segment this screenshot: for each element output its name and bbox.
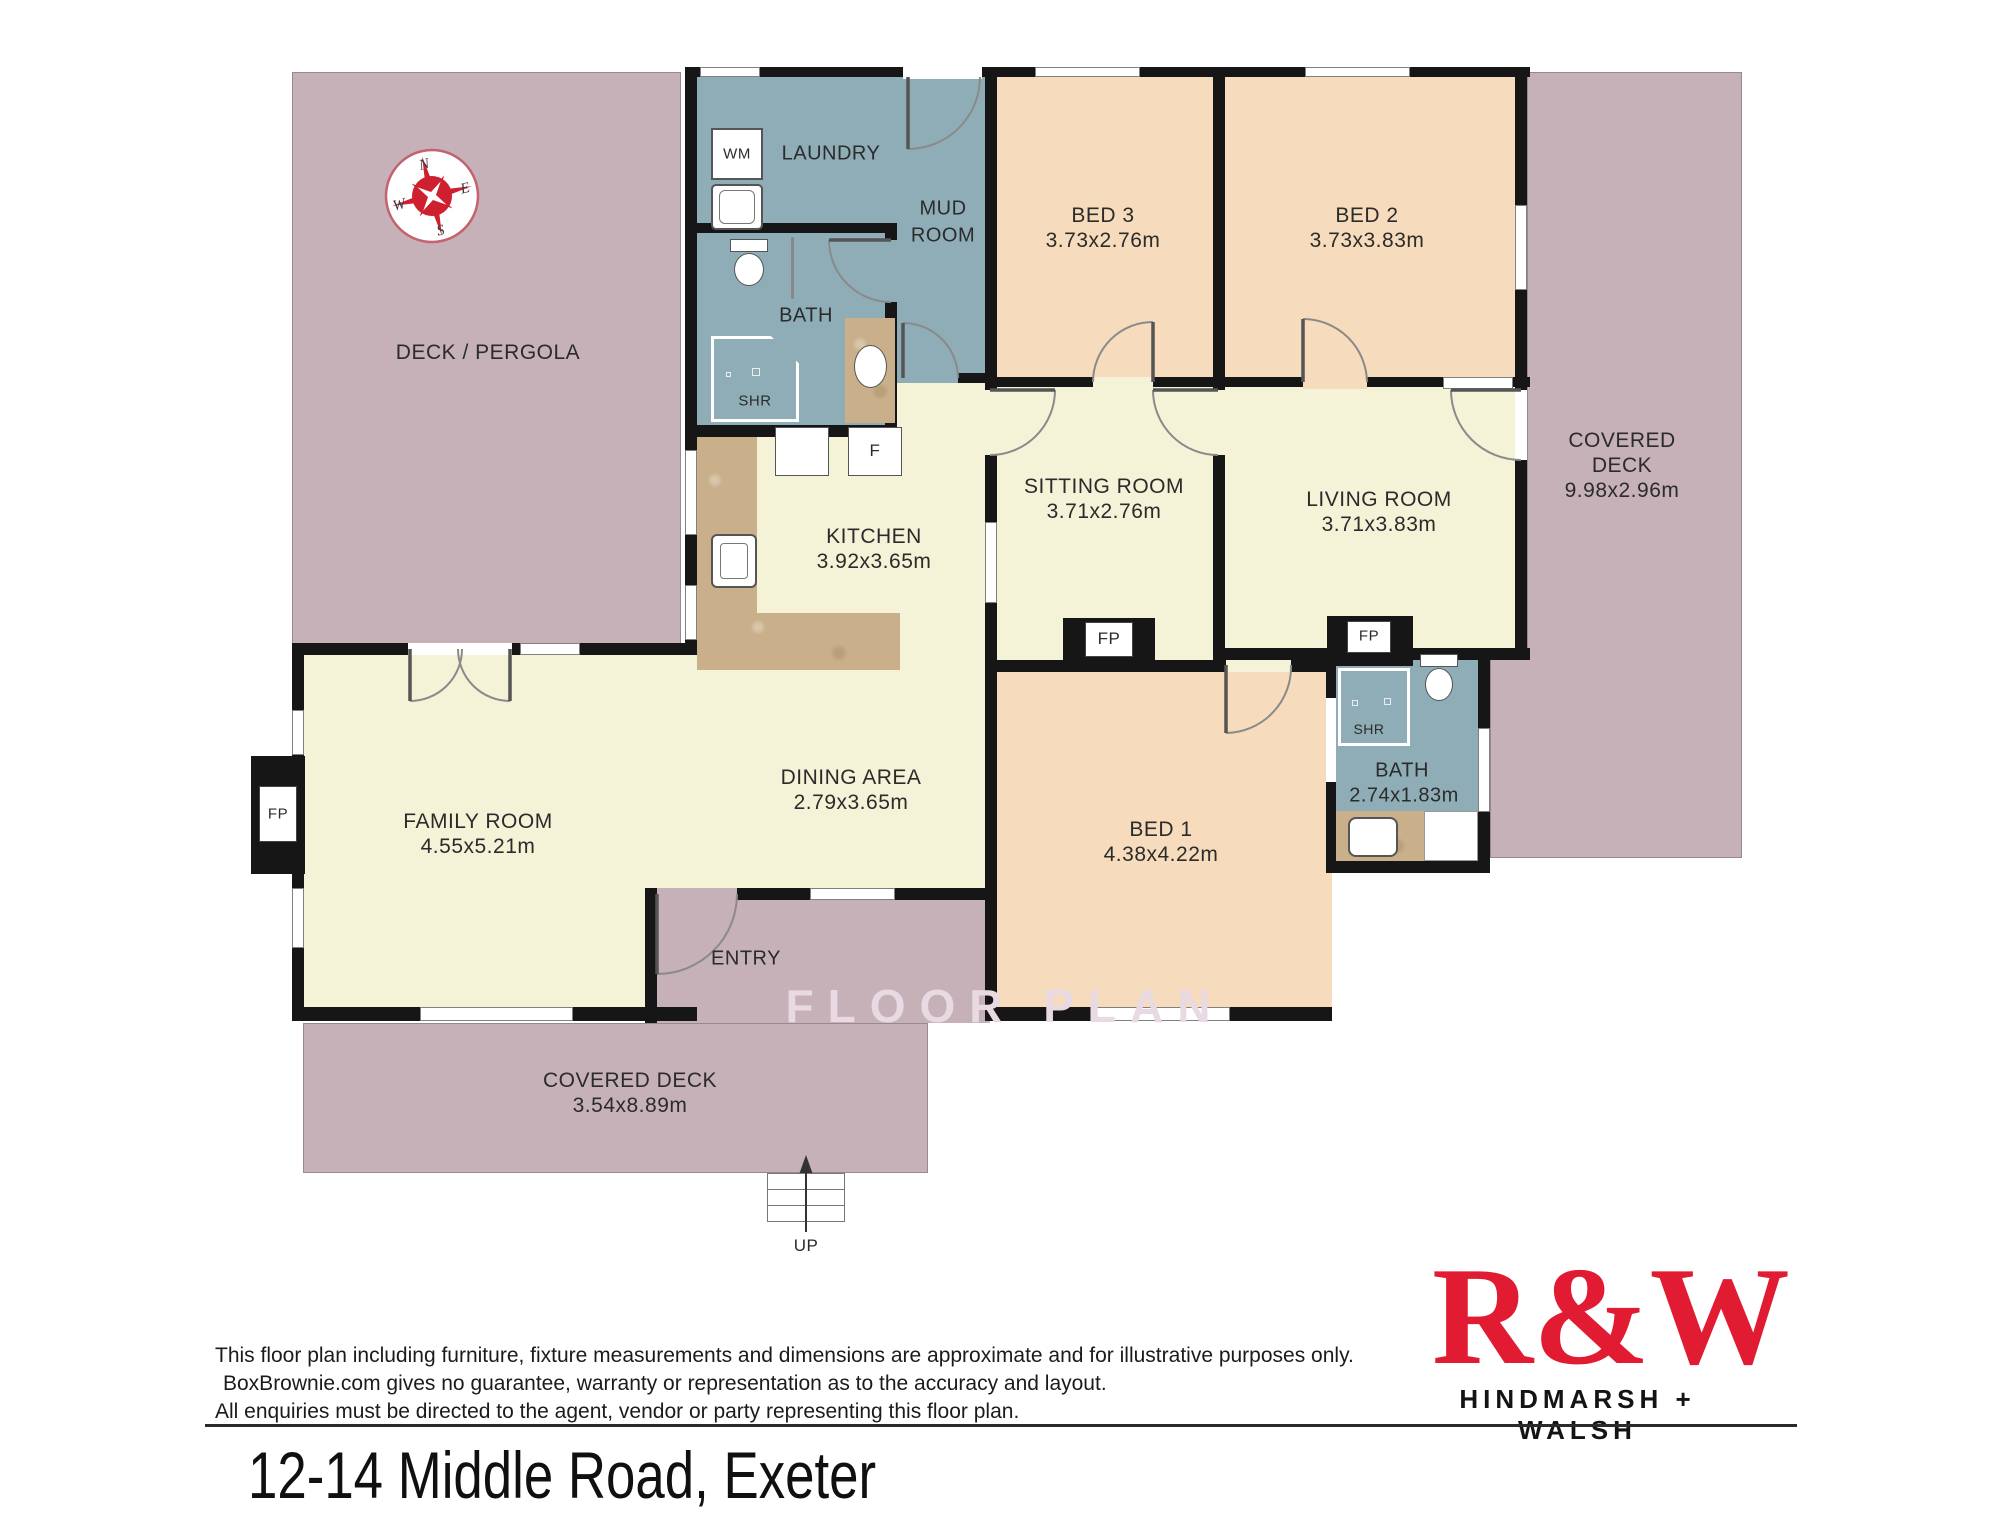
wall-segment (645, 888, 657, 1023)
room-dims-living-room: 3.71x3.83m (1322, 513, 1437, 537)
room-dims-family-room: 4.55x5.21m (421, 835, 536, 859)
stair-step (767, 1205, 845, 1222)
room-dims-bed3: 3.73x2.76m (1046, 229, 1161, 253)
door-opening (1326, 698, 1336, 782)
label-fp-living: FP (1359, 628, 1379, 645)
wall-segment (685, 67, 697, 655)
door-opening (1213, 390, 1225, 455)
brand-name: HINDMARSH + WALSH (1405, 1384, 1750, 1446)
room-label-bath-top: BATH (779, 305, 833, 328)
wall-segment (1515, 67, 1527, 660)
window (1305, 67, 1410, 77)
window (700, 67, 760, 77)
shower-top-drain (752, 368, 760, 376)
room-label-family-room: FAMILY ROOM (403, 810, 552, 834)
shower-bottom-head (1352, 700, 1358, 706)
window (985, 522, 997, 603)
label-fridge: F (870, 441, 881, 461)
room-label-mud-room-2: ROOM (911, 225, 975, 248)
room-label-bath-bottom: BATH (1375, 760, 1429, 783)
door-opening (1226, 660, 1291, 672)
window (420, 1007, 573, 1021)
window (292, 888, 304, 948)
window (292, 710, 304, 755)
stove (775, 427, 829, 476)
window (1478, 728, 1490, 812)
window (520, 643, 580, 655)
window (1035, 67, 1140, 77)
door-opening (985, 390, 997, 455)
toilet-bowl (734, 253, 764, 286)
door-opening (1093, 377, 1153, 389)
label-fp-sitting: FP (1098, 629, 1121, 649)
vanity-side (1424, 811, 1478, 861)
bath-top-basin (854, 345, 887, 388)
room-label-covered-deck-right-2: DECK (1592, 454, 1652, 478)
footer-divider (205, 1424, 1797, 1427)
room-dims-bed2: 3.73x3.83m (1310, 229, 1425, 253)
room-label-entry: ENTRY (711, 948, 781, 971)
hallway-area (897, 383, 990, 637)
room-label-mud-room-1: MUD (919, 198, 966, 221)
door-opening (903, 67, 982, 79)
covered-deck-right-seam (1528, 648, 1741, 654)
door-opening (1515, 390, 1527, 460)
room-label-shr-bottom: SHR (1353, 721, 1384, 737)
window (810, 888, 895, 900)
wall-segment (1326, 861, 1488, 873)
room-dims-covered-deck-right: 9.98x2.96m (1565, 479, 1680, 503)
vanity-sink (1348, 817, 1398, 857)
disclaimer-line-1: This floor plan including furniture, fix… (215, 1342, 1354, 1370)
room-label-dining-area: DINING AREA (781, 766, 922, 790)
door-opening (657, 888, 737, 900)
shower-top-head (726, 372, 731, 377)
door-opening (408, 643, 512, 655)
room-label-deck-pergola: DECK / PERGOLA (396, 341, 580, 365)
disclaimer-line-2: BoxBrownie.com gives no guarantee, warra… (215, 1370, 1354, 1398)
room-label-living-room: LIVING ROOM (1306, 488, 1452, 512)
kitchen-sink-basin (720, 543, 748, 579)
stair-step (767, 1173, 845, 1190)
room-dims-dining-area: 2.79x3.65m (794, 791, 909, 815)
toilet2-bowl (1425, 668, 1453, 701)
window (685, 585, 697, 640)
room-label-shr-top: SHR (738, 393, 771, 410)
door-opening (897, 373, 958, 383)
room-dims-bed1: 4.38x4.22m (1104, 843, 1219, 867)
room-label-bed3: BED 3 (1071, 204, 1134, 228)
label-wm: WM (723, 146, 751, 163)
room-label-sitting-room: SITTING ROOM (1024, 475, 1184, 499)
room-label-bed1: BED 1 (1129, 818, 1192, 842)
shower-bottom-drain (1384, 698, 1391, 705)
wall-segment (985, 377, 997, 1021)
wall-segment (1213, 67, 1225, 387)
room-label-kitchen: KITCHEN (826, 525, 922, 549)
room-label-bed2: BED 2 (1335, 204, 1398, 228)
window (685, 450, 697, 535)
disclaimer-line-3: All enquiries must be directed to the ag… (215, 1398, 1354, 1426)
brand-logo: R&W (1432, 1252, 1722, 1382)
toilet2-cistern (1420, 654, 1458, 667)
room-dims-sitting-room: 3.71x2.76m (1047, 500, 1162, 524)
label-fp-family: FP (268, 806, 288, 823)
toilet-cistern (730, 239, 768, 252)
room-label-laundry: LAUNDRY (782, 143, 881, 166)
wall-segment (985, 67, 997, 387)
room-label-covered-deck-bottom: COVERED DECK (543, 1069, 717, 1093)
kitchen-counter-peninsula (697, 613, 900, 670)
door-opening (1303, 377, 1367, 389)
laundry-tub-basin (719, 190, 755, 224)
room-label-covered-deck-right-1: COVERED (1568, 429, 1675, 453)
room-dims-kitchen: 3.92x3.65m (817, 550, 932, 574)
property-address: 12-14 Middle Road, Exeter (248, 1437, 1033, 1513)
covered-deck-right-lower (1490, 650, 1742, 858)
label-up: UP (794, 1236, 819, 1256)
room-dims-covered-deck-bottom: 3.54x8.89m (573, 1094, 688, 1118)
watermark: FLOOR PLAN (786, 979, 1225, 1033)
door-opening (885, 240, 897, 302)
room-dims-bath-bottom: 2.74x1.83m (1349, 785, 1459, 808)
window (1515, 205, 1527, 290)
covered-deck-right-area (1527, 72, 1742, 658)
disclaimer: This floor plan including furniture, fix… (215, 1342, 1354, 1426)
window (1443, 377, 1513, 389)
stair-step (767, 1189, 845, 1206)
bath-divider (791, 237, 794, 299)
